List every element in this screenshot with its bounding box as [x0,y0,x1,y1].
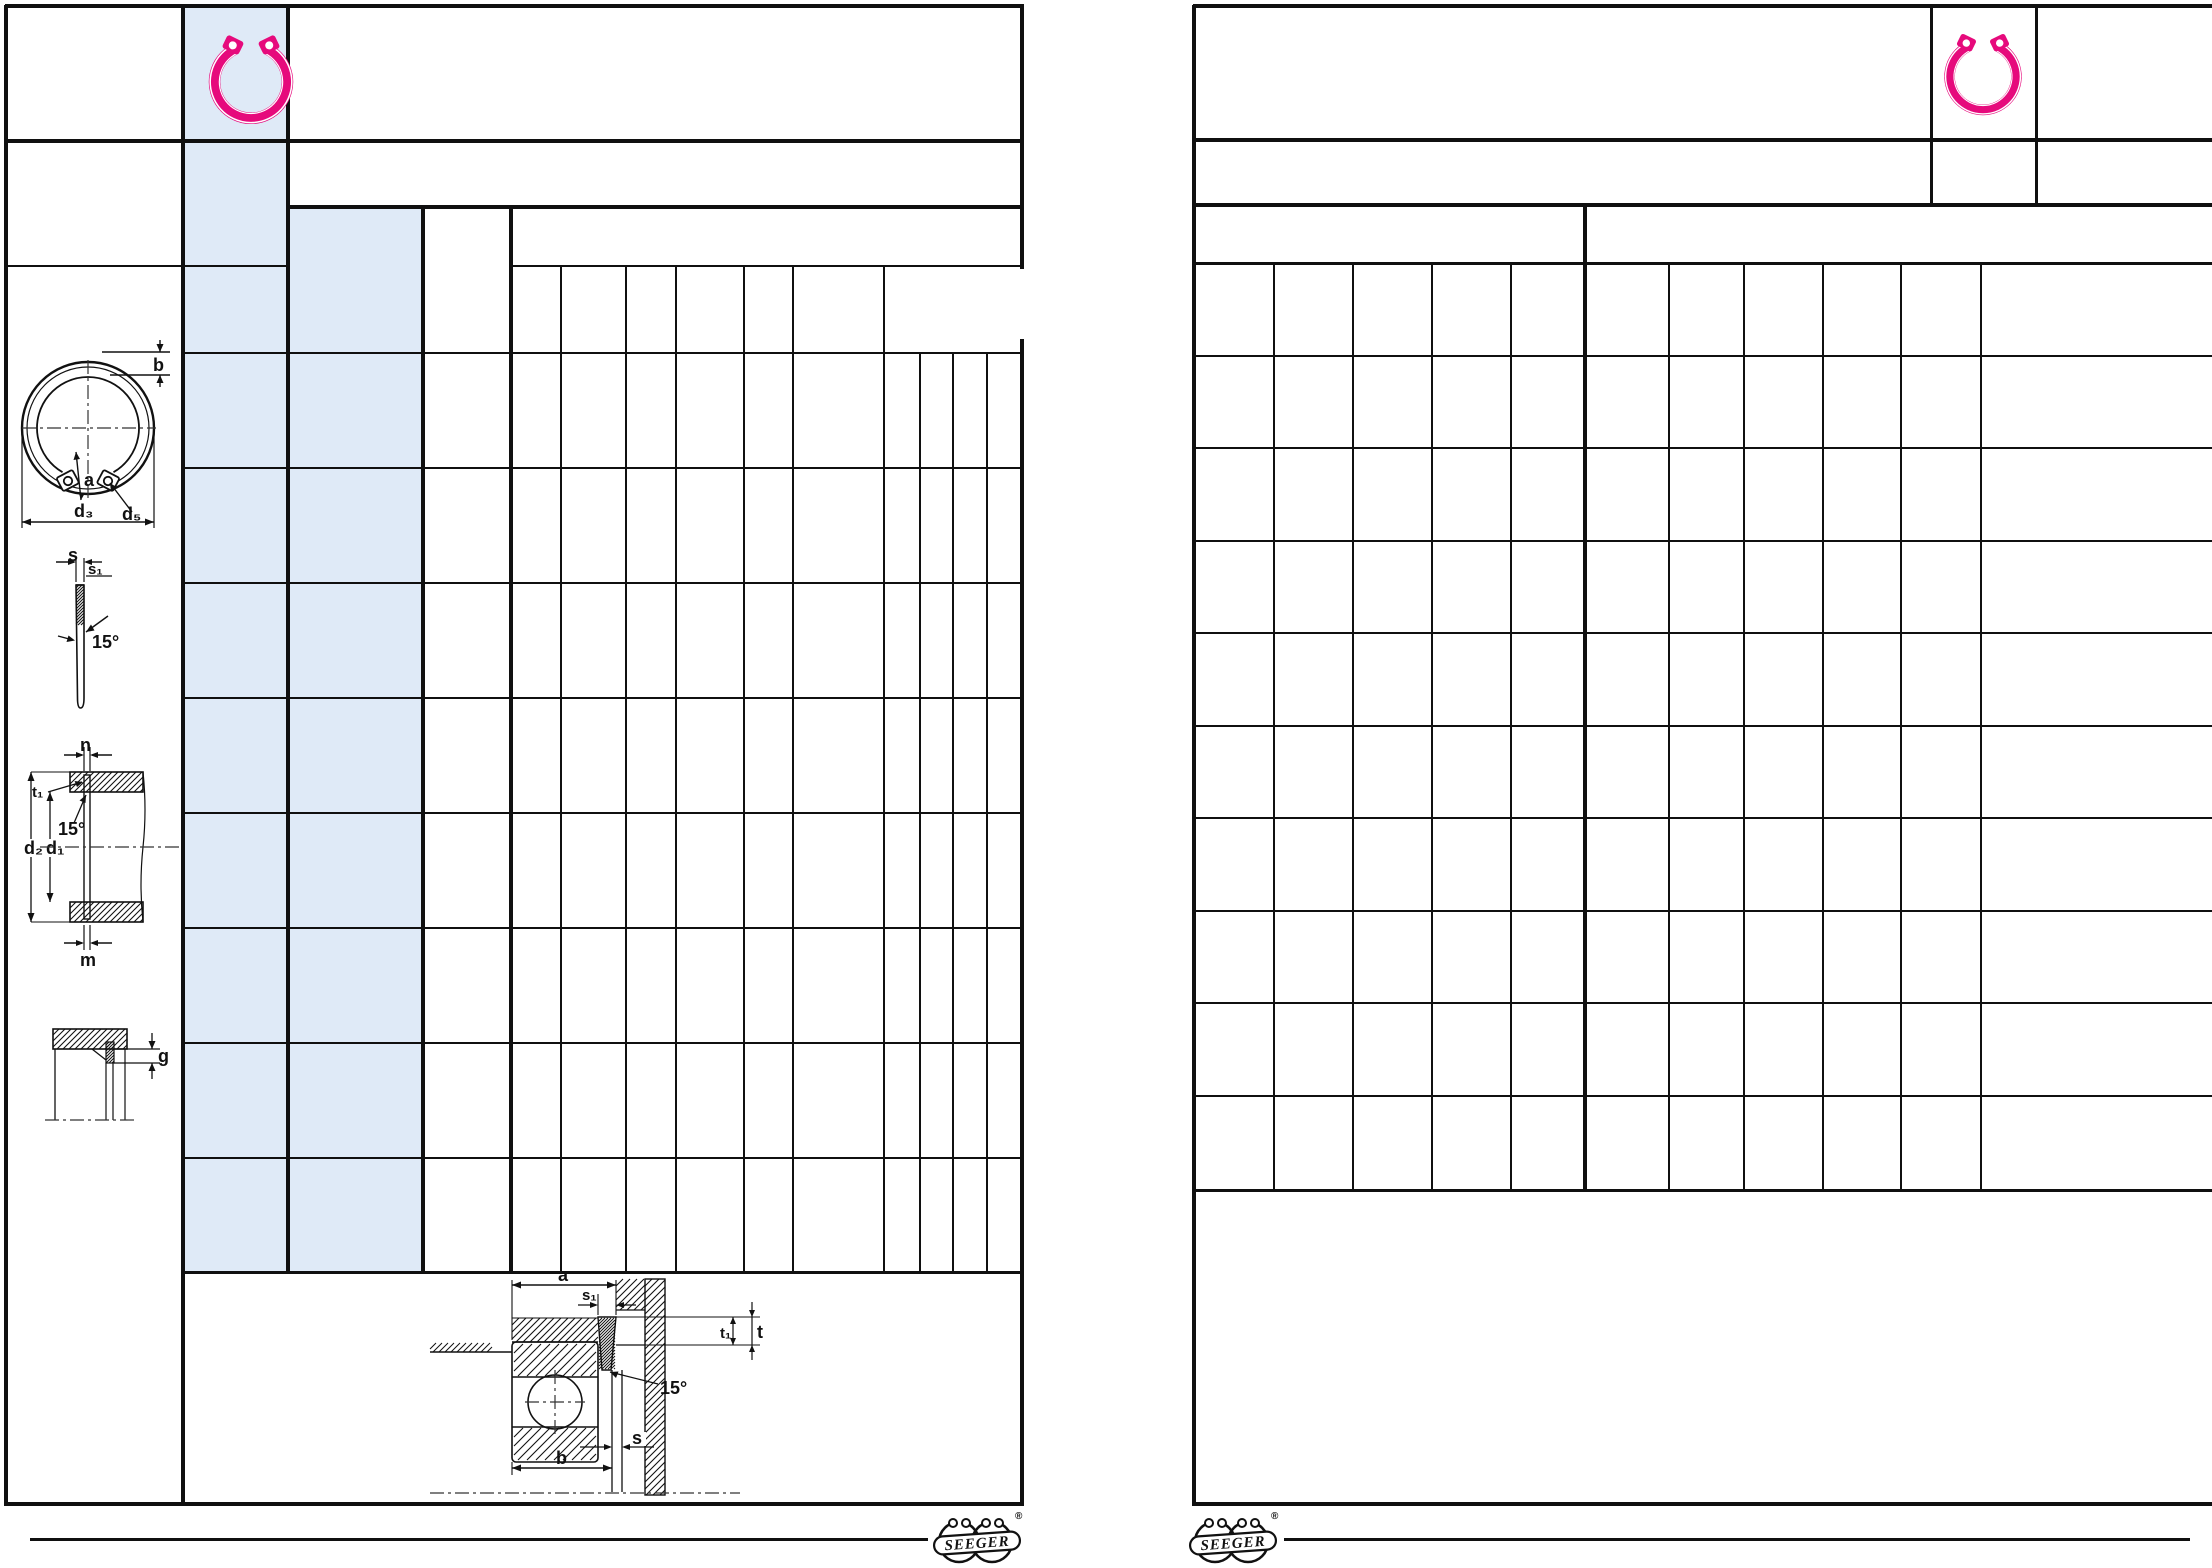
grid-line [421,206,425,1272]
ring-front-view-drawing: b a d₅ d₃ [10,340,220,540]
dim-label-d1: d₁ [46,838,64,858]
footer-rule-left [30,1538,928,1541]
grid-line [1193,817,2212,819]
grid-line [510,265,1024,267]
footer-rule-right [1284,1538,2190,1541]
dim-label-a2: a [558,1265,569,1285]
dim-label-t1b: t₁ [720,1325,731,1342]
grid-line [743,265,745,1272]
dim-label-angle2: 15° [58,819,85,839]
seeger-logo: SEEGER ® [1185,1509,1281,1567]
grid-line [1930,5,1933,204]
grid-line [1583,204,1587,1189]
dim-label-s1b: s₁ [582,1287,597,1304]
grid-line [5,265,287,267]
grid-line [1193,355,2212,357]
grid-line [1193,910,2212,912]
ring-profile-drawing: s s₁ 15° [40,550,170,720]
dim-label-s2: s [632,1428,642,1448]
dim-label-m: m [80,950,96,970]
grid-line [4,5,8,1506]
dim-label-s1: s₁ [88,561,103,578]
grid-line [5,139,1024,143]
grid-line [675,265,677,1272]
grid-line [182,582,1024,584]
grid-line [182,352,1024,354]
grid-line [560,265,562,1272]
grid-line [182,927,1024,929]
grid-line [1193,1095,2212,1097]
grid-line [1193,1189,2212,1192]
grid-line [182,697,1024,699]
circlip-icon [1939,27,2027,119]
grid-line [1193,632,2212,634]
registered-mark: ® [1271,1511,1279,1522]
bearing-mount-drawing: a s₁ [430,1270,775,1505]
grid-line [2035,5,2038,204]
grid-line [1193,447,2212,449]
dim-label-d2: d₂ [24,838,43,858]
grid-line [1193,4,2212,8]
dim-label-n: n [80,735,91,755]
grid-line [1020,5,1024,269]
grid-line [1020,339,1024,1506]
circlip-icon [203,28,299,128]
dim-label-t: t [757,1322,763,1342]
grid-line [287,205,1024,209]
grid-line [1193,1502,2212,1506]
dim-label-d3: d₃ [74,501,93,521]
grid-line [625,265,627,1272]
dim-label-d5: d₅ [122,504,141,524]
grid-line [509,206,513,1272]
grid-line [1193,540,2212,542]
housing-bore-drawing: n t₁ 15° d₂ d₁ m [20,735,190,970]
grid-line [1193,138,2212,142]
dim-label-angle3: 15° [660,1378,687,1398]
dim-label-a: a [84,470,95,490]
dim-label-t1: t₁ [32,784,43,801]
left-table-highlight-col-2 [289,208,421,1271]
dim-label-b2: b [556,1448,567,1468]
grid-line [1193,203,2212,207]
seeger-logo: SEEGER ® [929,1509,1025,1567]
dim-label-s: s [68,545,78,565]
grid-line [792,265,794,1272]
grid-line [1193,262,2212,265]
grid-line [182,812,1024,814]
catalog-page: b a d₅ d₃ s s₁ 15° [0,0,2212,1568]
registered-mark: ® [1015,1511,1023,1522]
grid-line [1192,5,1196,1506]
grid-line [883,265,885,1272]
grid-line [182,1042,1024,1044]
grid-line [1193,725,2212,727]
grid-line [5,4,1024,8]
edge-clearance-drawing: g [30,1015,180,1130]
grid-line [286,5,290,1272]
dim-label-b: b [153,355,164,375]
dim-label-angle: 15° [92,632,119,652]
left-table-highlight-col-1 [184,6,286,1271]
grid-line [182,1157,1024,1159]
grid-line [1193,1002,2212,1004]
dim-label-g: g [158,1046,169,1066]
grid-line [182,467,1024,469]
